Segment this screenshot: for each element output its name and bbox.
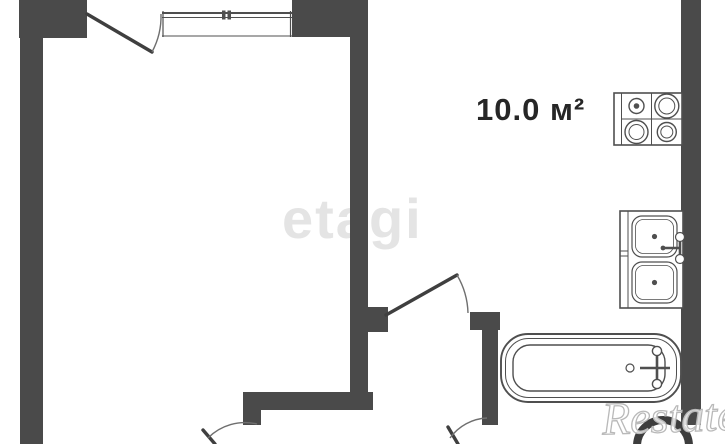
door-kitchen-icon	[386, 275, 468, 315]
stove-icon	[614, 93, 682, 145]
watermark-restate: Restate	[601, 392, 725, 443]
plan-drawing-layer	[0, 0, 725, 444]
door-room-icon	[203, 423, 257, 444]
door-balcony-icon	[87, 14, 161, 52]
door-bathroom-icon	[448, 418, 487, 444]
floorplan-canvas: etagi	[0, 0, 725, 444]
kitchen-area-label: 10.0 м²	[476, 92, 585, 128]
double-sink-icon	[620, 211, 685, 308]
window-icon	[162, 11, 292, 38]
